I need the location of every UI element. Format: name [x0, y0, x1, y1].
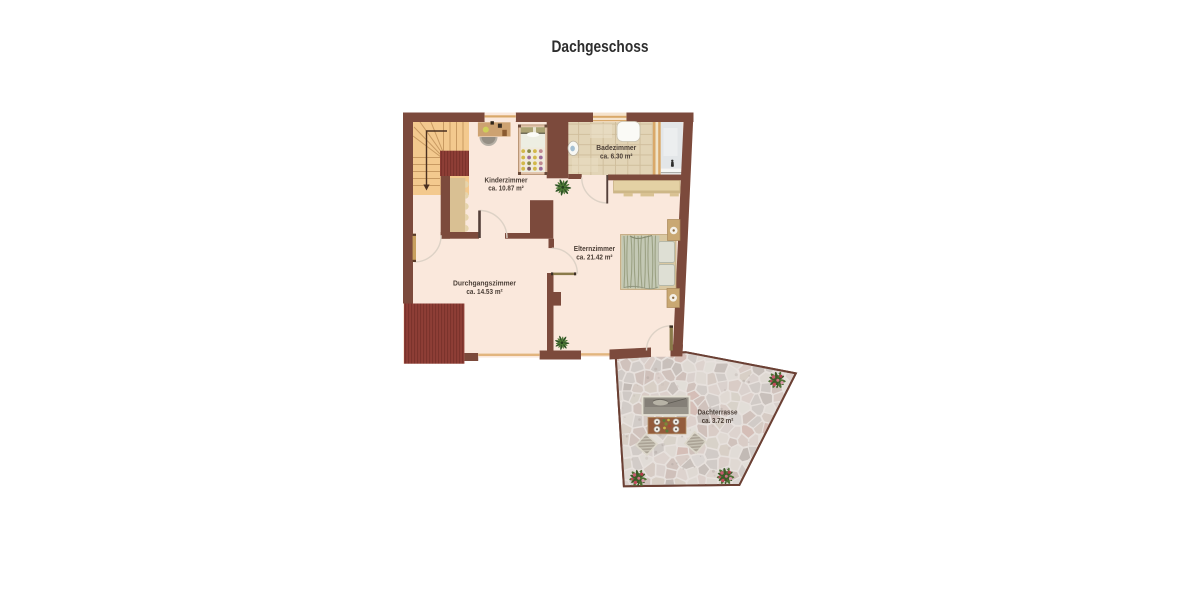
svg-text:ca. 3.72 m²: ca. 3.72 m²	[702, 416, 734, 425]
svg-text:ca. 6.30 m²: ca. 6.30 m²	[600, 152, 633, 161]
svg-text:ca. 21.42 m²: ca. 21.42 m²	[576, 253, 613, 262]
svg-text:ca. 10.87 m²: ca. 10.87 m²	[488, 184, 524, 193]
svg-text:Dachgeschoss: Dachgeschoss	[552, 37, 649, 56]
svg-text:ca. 14.53 m²: ca. 14.53 m²	[466, 287, 503, 296]
